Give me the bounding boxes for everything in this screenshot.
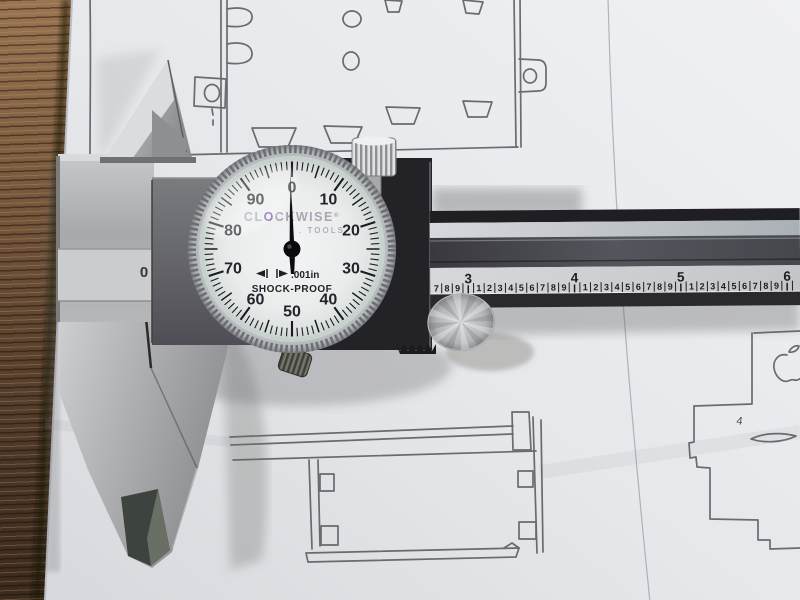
beam-left-end: [58, 249, 152, 301]
inch-numeral: 5: [677, 269, 685, 284]
tenth-numeral: 6: [742, 281, 747, 291]
shockproof-label: SHOCK-PROOF: [252, 284, 333, 295]
tenth-numeral: 2: [700, 281, 705, 291]
tenth-numeral: 9: [561, 282, 566, 292]
beam: 7893123456789412345678951234567896: [430, 208, 800, 308]
tenth-numeral: 4: [615, 282, 620, 292]
tenth-numeral: 6: [529, 283, 534, 293]
tenth-numeral: 7: [434, 283, 439, 293]
tenth-numeral: 8: [657, 282, 662, 292]
tenth-numeral: 8: [551, 283, 556, 293]
tenth-numeral: 3: [604, 282, 609, 292]
tenth-numeral: 8: [763, 281, 768, 291]
brand-subtext: . TOOLS: [299, 226, 345, 235]
precision-label: .001in: [291, 270, 319, 281]
caliper-photo: 4 0: [0, 0, 800, 600]
desk-scene: 4 0: [0, 0, 800, 600]
tenth-numeral: 4: [721, 281, 726, 291]
scale-origin-label: 0: [140, 264, 148, 281]
inch-numeral: 3: [464, 271, 472, 286]
tenth-numeral: 1: [689, 281, 694, 291]
tenth-numeral: 5: [625, 282, 630, 292]
dial-numeral: 30: [342, 261, 360, 278]
tenth-numeral: 3: [710, 281, 715, 291]
tenth-numeral: 9: [774, 281, 779, 291]
dial-numeral: 10: [320, 191, 338, 208]
dial-numeral: 70: [224, 261, 242, 278]
tenth-numeral: 7: [753, 281, 758, 291]
fixed-jaw-block: 0: [56, 154, 154, 322]
inch-numeral: 4: [571, 270, 579, 285]
tenth-numeral: 4: [508, 283, 513, 293]
tenth-numeral: 2: [487, 283, 492, 293]
tenth-numeral: 7: [646, 282, 651, 292]
tenth-numeral: 2: [593, 282, 598, 292]
tenth-numeral: 1: [476, 283, 481, 293]
tenth-numeral: 5: [731, 281, 736, 291]
tenth-numeral: 1: [583, 282, 588, 292]
tenth-numeral: 8: [444, 283, 449, 293]
tenth-numeral: 6: [636, 282, 641, 292]
tenth-numeral: 5: [519, 283, 524, 293]
tenth-numeral: 9: [455, 283, 460, 293]
inch-numeral: 6: [783, 269, 791, 284]
dial-indicator: 0102030405060708090 CLOCKWISE® . TOOLS .…: [188, 145, 396, 353]
tenth-numeral: 3: [498, 283, 503, 293]
tenth-numeral: 9: [668, 282, 673, 292]
dial-numeral: 50: [283, 304, 301, 321]
tenth-numeral: 7: [540, 283, 545, 293]
